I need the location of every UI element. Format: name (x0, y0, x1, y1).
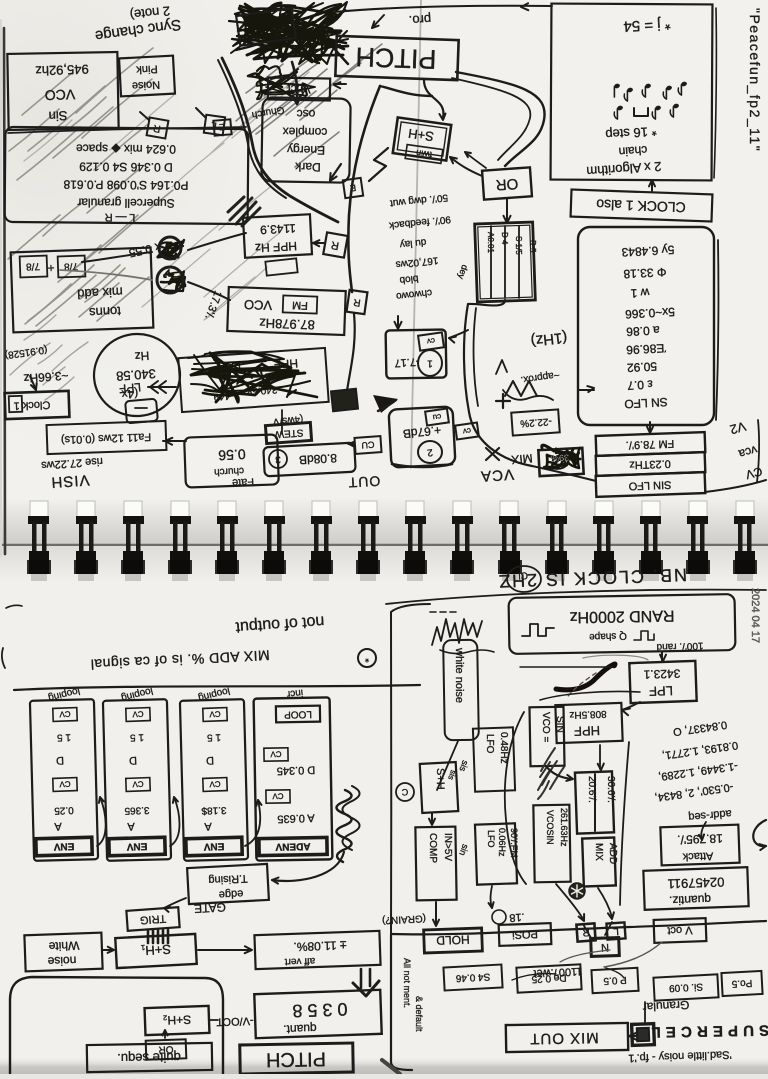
svg-text:Energy: Energy (287, 143, 325, 158)
svg-text:18.795'/.: 18.795'/. (677, 831, 723, 847)
svg-text:P 0.5: P 0.5 (603, 974, 627, 986)
svg-text:8.08dB: 8.08dB (299, 451, 338, 467)
svg-text:ENV: ENV (53, 840, 74, 852)
svg-text:IN>5V: IN>5V (442, 833, 453, 861)
svg-text:Attack: Attack (682, 849, 713, 862)
svg-text:(GRAIN?): (GRAIN?) (382, 912, 426, 925)
svg-text:S4 0.46: S4 0.46 (455, 971, 490, 984)
svg-text:POSi: POSi (512, 928, 538, 941)
svg-text:ADENV: ADENV (275, 840, 311, 852)
svg-text:cv: cv (462, 426, 471, 436)
svg-text:MIX OUT: MIX OUT (529, 1029, 599, 1047)
svg-text:noise: noise (47, 954, 76, 969)
svg-text:aff vert: aff vert (284, 955, 315, 967)
svg-text:cv: cv (426, 336, 435, 346)
svg-text:3.18$: 3.18$ (201, 804, 227, 816)
svg-text:0.624 mix ◆ space: 0.624 mix ◆ space (76, 142, 176, 157)
svg-text:Φ 33.18: Φ 33.18 (623, 265, 667, 281)
svg-text:CV: CV (270, 749, 282, 758)
svg-text:LPF: LPF (649, 683, 673, 699)
svg-text:VCO: VCO (244, 297, 273, 313)
svg-text:1: 1 (427, 358, 433, 369)
svg-text:Έ86.96: Έ86.96 (626, 341, 667, 357)
svg-text:3423.1: 3423.1 (643, 666, 680, 681)
svg-text:CV: CV (209, 779, 221, 788)
svg-text:Granular: Granular (642, 998, 689, 1014)
svg-text:90'/.FM: 90'/.FM (509, 828, 519, 858)
svg-text:Si. 0.09: Si. 0.09 (668, 981, 703, 994)
svg-text:P0.164 S'0.098 P.0.618: P0.164 S'0.098 P.0.618 (63, 177, 188, 192)
svg-text:church: church (214, 465, 245, 478)
svg-text:A: A (203, 820, 211, 832)
svg-text:50.92: 50.92 (626, 359, 657, 375)
svg-text:T.Rising: T.Rising (208, 872, 248, 886)
svg-text:S+H₂: S+H₂ (162, 1013, 191, 1028)
svg-text:A: A (126, 820, 134, 832)
svg-text:808.5Hz: 808.5Hz (569, 708, 607, 720)
svg-text:1 5: 1 5 (206, 731, 221, 742)
svg-text:CU: CU (361, 440, 375, 451)
svg-text:L — R: L — R (105, 211, 136, 223)
svg-text:Q shape: Q shape (588, 630, 627, 642)
svg-text:* j = 54: * j = 54 (623, 15, 671, 34)
svg-text:0 3 5 8: 0 3 5 8 (292, 999, 348, 1021)
svg-text:S+H₁: S+H₁ (140, 942, 171, 959)
svg-text:white noise: white noise (453, 647, 465, 703)
svg-text:LFO: LFO (484, 734, 495, 754)
svg-text:a 0.86: a 0.86 (626, 323, 660, 339)
svg-text:CLOCK 1 also: CLOCK 1 also (596, 196, 686, 215)
svg-text:HOLD: HOLD (436, 932, 470, 947)
svg-text:0.25: 0.25 (54, 804, 74, 816)
svg-text:RAND 2000Hz: RAND 2000Hz (569, 607, 674, 626)
svg-text:All not ment.: All not ment. (402, 958, 412, 1008)
svg-text:± 11.08%.: ± 11.08%. (293, 938, 347, 954)
svg-text:D: D (129, 754, 137, 766)
svg-text:chain: chain (618, 143, 648, 159)
svg-text:100'/. rand: 100'/. rand (656, 640, 703, 653)
svg-text:02457911: 02457911 (667, 875, 724, 892)
svg-text:-7.17: -7.17 (394, 355, 420, 369)
svg-text:& default: & default (414, 996, 424, 1032)
svg-text:MIX: MIX (511, 451, 533, 467)
svg-text:LFO: LFO (486, 830, 496, 848)
svg-text:5y 6.4843: 5y 6.4843 (621, 243, 675, 260)
svg-text:LOOP: LOOP (284, 708, 312, 719)
svg-text:White: White (48, 938, 79, 953)
svg-text:edge: edge (218, 887, 243, 900)
svg-text:"Peacefun_fp2_11": "Peacefun_fp2_11" (747, 8, 763, 152)
svg-text:S U P E R C E L L: S U P E R C E L L (637, 1021, 768, 1040)
svg-text:CV: CV (272, 791, 284, 800)
svg-text:SIN: SIN (554, 716, 565, 733)
svg-text:.18: .18 (509, 910, 525, 923)
svg-text:3: 3 (274, 453, 281, 464)
svg-text:39%: 39% (551, 453, 570, 464)
svg-text:TRIG: TRIG (139, 912, 166, 926)
svg-text:HPF Hz: HPF Hz (255, 239, 298, 255)
svg-text:87.978Hz: 87.978Hz (259, 316, 315, 333)
svg-text:mix add: mix add (77, 284, 123, 301)
svg-text:De 0.25: De 0.25 (531, 972, 567, 985)
svg-text:pro.: pro. (408, 12, 431, 29)
svg-text:ENV: ENV (203, 840, 224, 852)
svg-text:SN LFO: SN LFO (624, 395, 668, 411)
svg-text:w 1: w 1 (630, 285, 651, 300)
svg-text:Noise: Noise (132, 78, 161, 91)
svg-text:D: D (206, 754, 214, 766)
svg-text:Voct: Voct (287, 82, 311, 96)
svg-text:945,92hz: 945,92hz (35, 62, 89, 79)
svg-text:Pink: Pink (136, 62, 158, 75)
svg-text:20.6'/.: 20.6'/. (586, 776, 597, 803)
svg-text:cu: cu (432, 412, 442, 422)
svg-text:0.06Hz: 0.06Hz (497, 828, 507, 857)
svg-text:OR: OR (495, 175, 519, 194)
svg-text:*: * (364, 652, 369, 664)
svg-text:A 0.635: A 0.635 (277, 811, 315, 824)
svg-text:CV: CV (132, 779, 144, 788)
svg-text:ADD: ADD (607, 843, 618, 864)
svg-text:Hz: Hz (134, 349, 150, 364)
svg-text:incr: incr (286, 687, 304, 700)
svg-text:osc: osc (297, 107, 316, 121)
svg-text:A0.01: A0.01 (486, 232, 495, 253)
svg-text:7/8: 7/8 (25, 260, 40, 271)
svg-text:tonns: tonns (88, 304, 121, 321)
svg-text:V oct: V oct (667, 924, 692, 937)
svg-text:CV: CV (132, 709, 144, 718)
svg-text:S 1/5: S 1/5 (514, 236, 523, 255)
svg-text:complex: complex (283, 125, 328, 140)
svg-text:+: + (47, 261, 54, 275)
svg-text:CI: CI (518, 569, 528, 580)
svg-text:Dark: Dark (294, 160, 321, 174)
svg-text:quant.: quant. (283, 1021, 317, 1036)
svg-text:D 0.346 S4 0.129: D 0.346 S4 0.129 (79, 160, 173, 175)
svg-text:VCA: VCA (480, 465, 515, 484)
svg-text:D 4: D 4 (500, 232, 509, 245)
svg-text:VCO =: VCO = (540, 712, 551, 742)
svg-text:ε 0.7: ε 0.7 (627, 377, 653, 392)
svg-text:blob: blob (399, 273, 419, 286)
svg-text:R: R (353, 296, 362, 308)
svg-text:1 5: 1 5 (129, 731, 144, 742)
svg-text:SIN LFO: SIN LFO (628, 478, 672, 492)
svg-text:Po.5: Po.5 (731, 977, 753, 989)
svg-text:D 0.345: D 0.345 (277, 763, 316, 776)
svg-text:COMP: COMP (427, 833, 438, 863)
svg-text:2024 04 17: 2024 04 17 (749, 588, 761, 643)
svg-text:D: D (56, 754, 64, 766)
svg-text:C: C (401, 787, 408, 797)
svg-text:Fate: Fate (232, 475, 255, 488)
svg-text:Supercell granular: Supercell granular (77, 196, 175, 211)
svg-text:1143.9: 1143.9 (259, 221, 296, 237)
svg-text:R 5: R 5 (528, 240, 537, 253)
svg-text:5x~0.366: 5x~0.366 (624, 305, 675, 322)
svg-text:261.63Hz: 261.63Hz (559, 808, 569, 847)
svg-text:-V/OCT: -V/OCT (216, 1014, 254, 1027)
svg-text:PITCH: PITCH (355, 42, 437, 75)
svg-text:A: A (53, 820, 61, 832)
svg-text:MIX: MIX (593, 843, 604, 861)
svg-text:PITCH: PITCH (266, 1047, 326, 1070)
svg-text:FM 78.9'/.: FM 78.9'/. (626, 437, 675, 451)
svg-text:-22.2%: -22.2% (520, 415, 552, 428)
svg-text:3.365: 3.365 (124, 804, 150, 816)
svg-text:VCO: VCO (44, 86, 75, 103)
svg-text:S+H: S+H (434, 768, 446, 790)
svg-text:CV: CV (59, 709, 71, 718)
svg-text:quite sequ.: quite sequ. (117, 1050, 181, 1066)
svg-text:VISH: VISH (50, 471, 90, 491)
svg-text:1 5: 1 5 (56, 731, 71, 742)
svg-text:OUT: OUT (347, 473, 380, 491)
svg-text:quantiz.: quantiz. (669, 892, 711, 907)
svg-text:CV: CV (209, 709, 221, 718)
svg-text:CV: CV (59, 779, 71, 788)
svg-text:0.23THz: 0.23THz (629, 457, 671, 470)
svg-text:Sin: Sin (48, 108, 67, 124)
svg-text:GATE: GATE (194, 900, 226, 916)
svg-text:LPF: LPF (118, 380, 141, 396)
svg-text:30.6'/.: 30.6'/. (605, 776, 616, 803)
svg-text:VCOSIN: VCOSIN (545, 810, 555, 845)
svg-text:Clock 1: Clock 1 (13, 398, 50, 411)
svg-text:ENV: ENV (126, 840, 147, 852)
svg-text:0.56: 0.56 (218, 446, 246, 463)
svg-text:HPF: HPF (574, 723, 601, 739)
svg-text:FM: FM (292, 299, 308, 312)
svg-text:STEW: STEW (274, 427, 304, 440)
